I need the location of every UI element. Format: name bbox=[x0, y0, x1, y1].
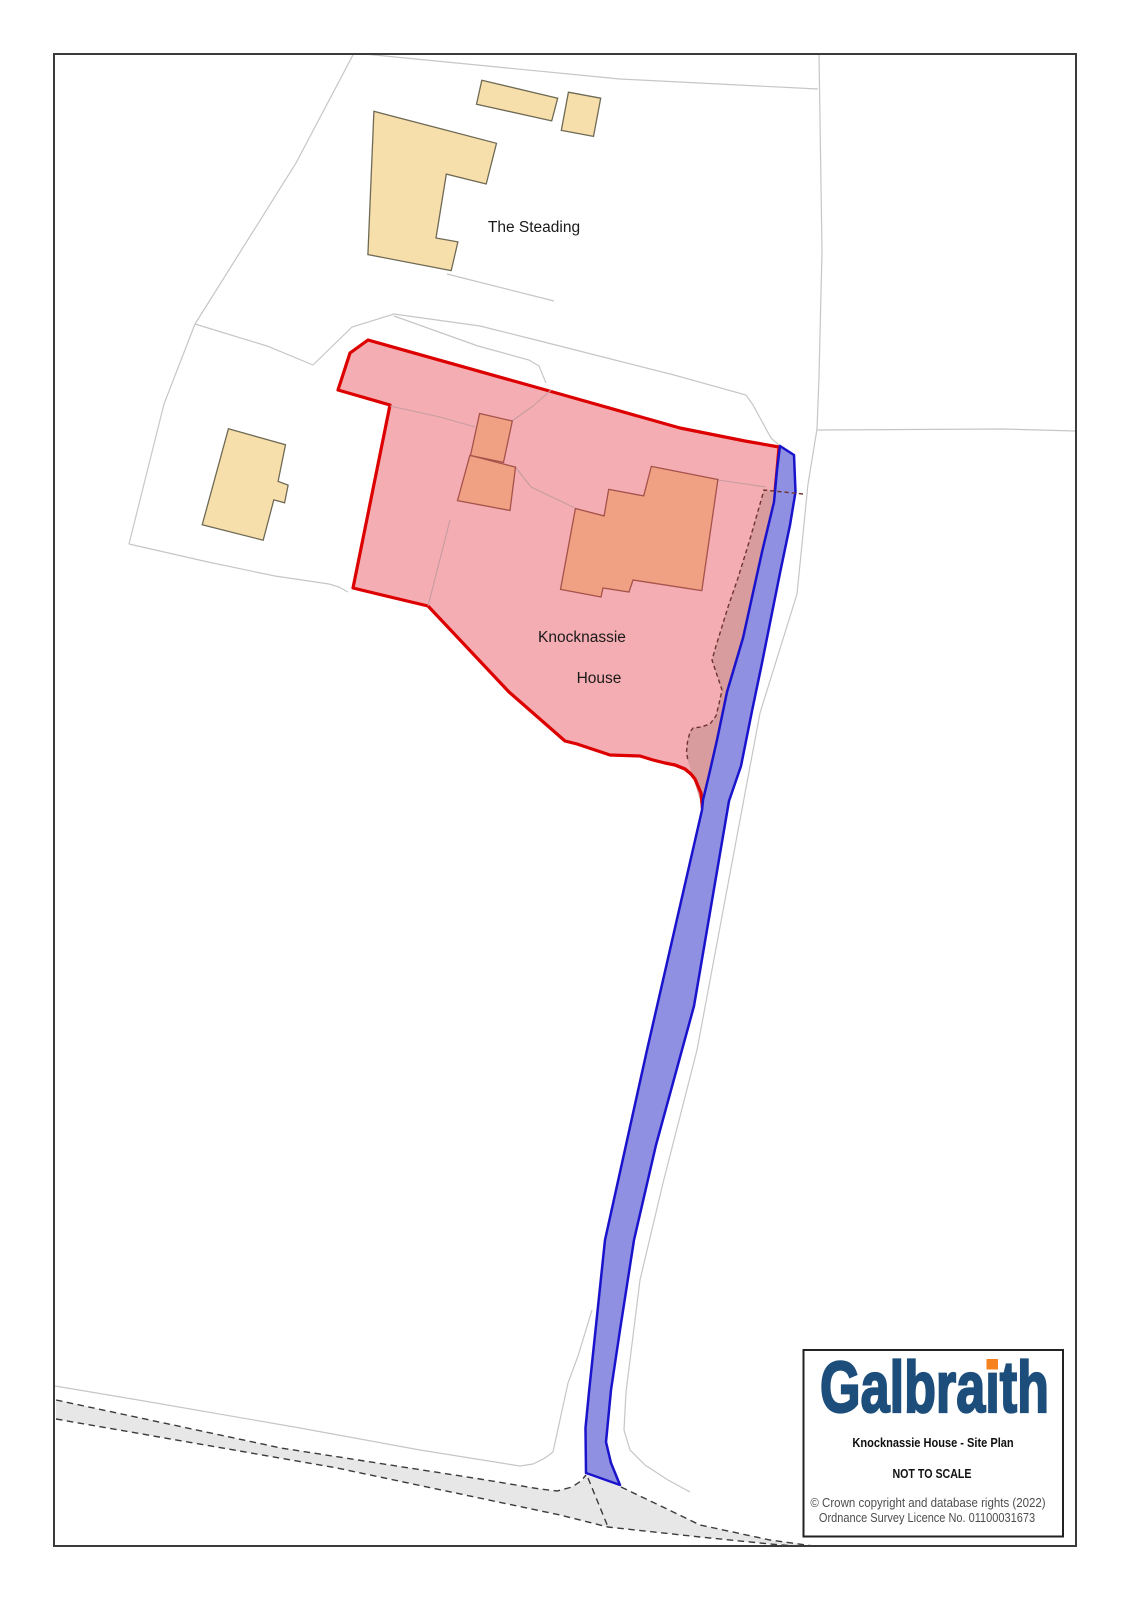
svg-text:House: House bbox=[577, 670, 622, 687]
svg-text:Knocknassie: Knocknassie bbox=[538, 629, 626, 646]
svg-text:Ordnance Survey Licence No. 01: Ordnance Survey Licence No. 01100031673 bbox=[819, 1511, 1036, 1525]
svg-text:Galbraıth: Galbraıth bbox=[820, 1348, 1049, 1428]
svg-text:Knocknassie House - Site Plan: Knocknassie House - Site Plan bbox=[852, 1435, 1013, 1450]
svg-text:The Steading: The Steading bbox=[488, 219, 580, 236]
svg-text:NOT TO SCALE: NOT TO SCALE bbox=[892, 1466, 971, 1481]
svg-text:© Crown copyright and database: © Crown copyright and database rights (2… bbox=[810, 1496, 1045, 1511]
